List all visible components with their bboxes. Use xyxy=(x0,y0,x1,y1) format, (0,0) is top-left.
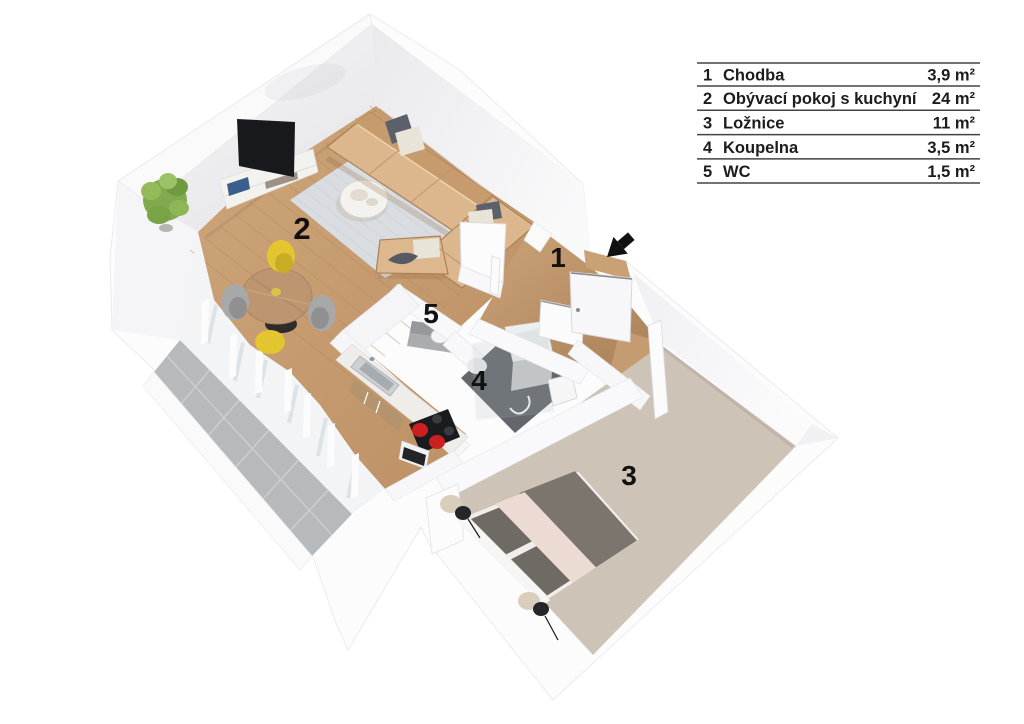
svg-text:24 m²: 24 m² xyxy=(932,90,976,108)
svg-text:3: 3 xyxy=(703,115,712,133)
svg-text:1,5 m²: 1,5 m² xyxy=(927,163,975,181)
svg-text:WC: WC xyxy=(723,163,751,181)
svg-text:1: 1 xyxy=(703,67,712,85)
svg-text:Ložnice: Ložnice xyxy=(723,115,784,133)
svg-text:3: 3 xyxy=(621,460,637,491)
svg-text:11 m²: 11 m² xyxy=(933,115,976,133)
svg-text:1: 1 xyxy=(550,242,566,273)
svg-text:5: 5 xyxy=(703,163,712,181)
svg-text:2: 2 xyxy=(703,90,712,108)
svg-text:4: 4 xyxy=(703,139,713,157)
svg-text:Obývací pokoj s kuchyní: Obývací pokoj s kuchyní xyxy=(723,90,918,108)
svg-text:3,9 m²: 3,9 m² xyxy=(927,67,975,85)
svg-text:3,5 m²: 3,5 m² xyxy=(927,139,975,157)
svg-text:Koupelna: Koupelna xyxy=(723,139,799,157)
svg-text:4: 4 xyxy=(471,365,487,396)
svg-text:5: 5 xyxy=(423,298,439,329)
svg-text:2: 2 xyxy=(293,211,310,246)
svg-text:Chodba: Chodba xyxy=(723,67,785,85)
